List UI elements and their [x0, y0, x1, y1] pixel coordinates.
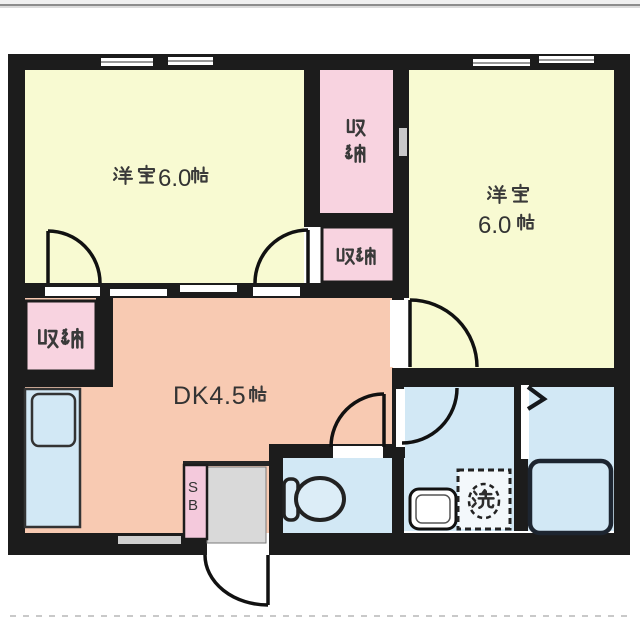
svg-text:S: S — [188, 479, 198, 496]
svg-text:6.0: 6.0 — [478, 212, 511, 239]
svg-text:6.0: 6.0 — [158, 165, 191, 192]
svg-text:DK4.5: DK4.5 — [173, 382, 246, 410]
svg-text:B: B — [188, 497, 198, 514]
